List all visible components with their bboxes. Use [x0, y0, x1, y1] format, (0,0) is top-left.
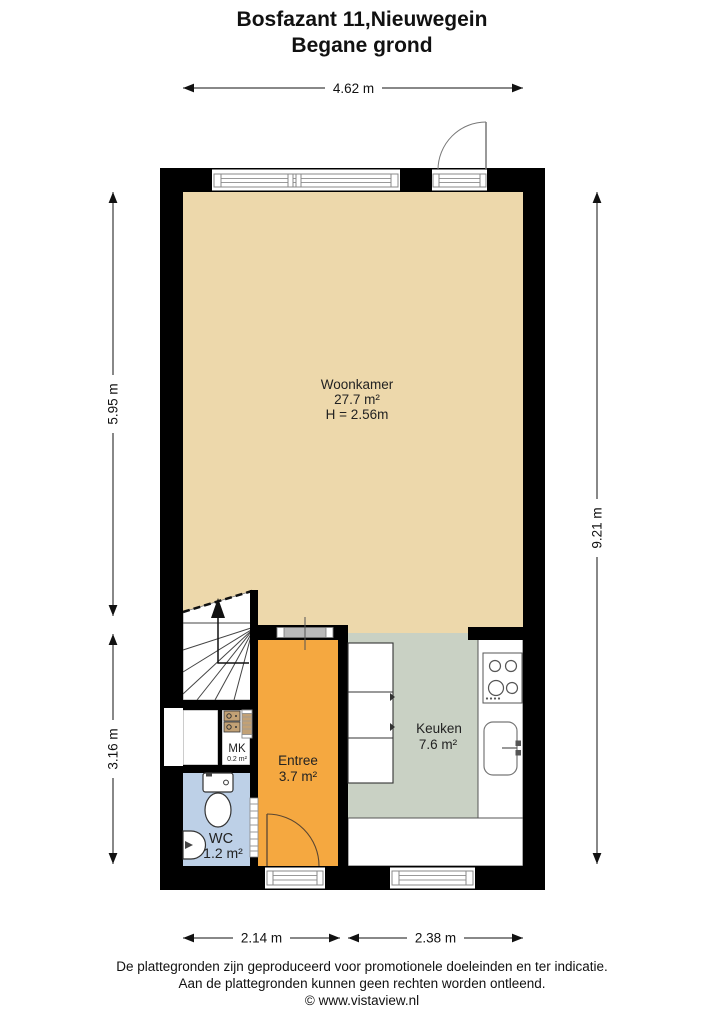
wall-opening-left: [164, 708, 183, 766]
disclaimer-line2: Aan de plattegronden kunnen geen rechten…: [0, 975, 724, 992]
back-door: [432, 122, 487, 191]
dim-right-total: 9.21 m: [590, 507, 605, 548]
dim-bottom-right: 2.38 m: [415, 930, 456, 945]
copyright: © www.vistaview.nl: [0, 992, 724, 1009]
sink-tap-icon: [516, 741, 522, 747]
kitchen-counter-bottom: [348, 818, 523, 866]
label-entree-area: 3.7 m²: [279, 769, 318, 784]
dim-top-width: 4.62 m: [333, 81, 374, 96]
dim-left-lower: 3.16 m: [106, 728, 121, 769]
toilet-icon: [203, 773, 233, 828]
dim-bottom-left: 2.14 m: [241, 930, 282, 945]
stove-icon: [483, 653, 522, 703]
label-keuken-area: 7.6 m²: [419, 737, 458, 752]
wall-bottom: [160, 866, 545, 890]
disclaimer: De plattegronden zijn geproduceerd voor …: [0, 958, 724, 1009]
label-mk-area: 0.2 m²: [227, 756, 248, 763]
wall-closet-mk-divider: [218, 710, 222, 765]
dim-left-upper: 5.95 m: [106, 383, 121, 424]
understairs-closet-floor: [183, 710, 218, 765]
wall-above-wc: [164, 765, 250, 773]
floor-plan: Woonkamer 27.7 m² H = 2.56m Entree 3.7 m…: [0, 0, 724, 1024]
wc-basin-icon: [183, 831, 206, 859]
label-wc-area: 1.2 m²: [203, 845, 243, 861]
kitchen-cabinets: [348, 643, 395, 783]
disclaimer-line1: De plattegronden zijn geproduceerd voor …: [0, 958, 724, 975]
wall-right: [523, 168, 545, 890]
wall-left: [160, 168, 183, 890]
wall-keuken-stub: [468, 627, 545, 640]
label-keuken: Keuken: [416, 721, 462, 736]
label-woonkamer: Woonkamer: [321, 377, 394, 392]
window-bottom: [390, 868, 475, 889]
sink-tap-icon: [516, 750, 522, 756]
wall-entree-right: [338, 625, 348, 866]
kitchen-sink-icon: [484, 722, 521, 775]
label-entree: Entree: [278, 753, 318, 768]
label-woonkamer-height: H = 2.56m: [326, 407, 389, 422]
wc-door: [250, 798, 258, 857]
label-woonkamer-area: 27.7 m²: [334, 392, 380, 407]
back-door-swing-icon: [438, 122, 486, 170]
floorplan-page: Bosfazant 11,Nieuwegein Begane grond: [0, 0, 724, 1024]
label-mk: MK: [228, 743, 246, 755]
window-top: [212, 170, 400, 191]
mk-door-icon: [242, 710, 252, 738]
